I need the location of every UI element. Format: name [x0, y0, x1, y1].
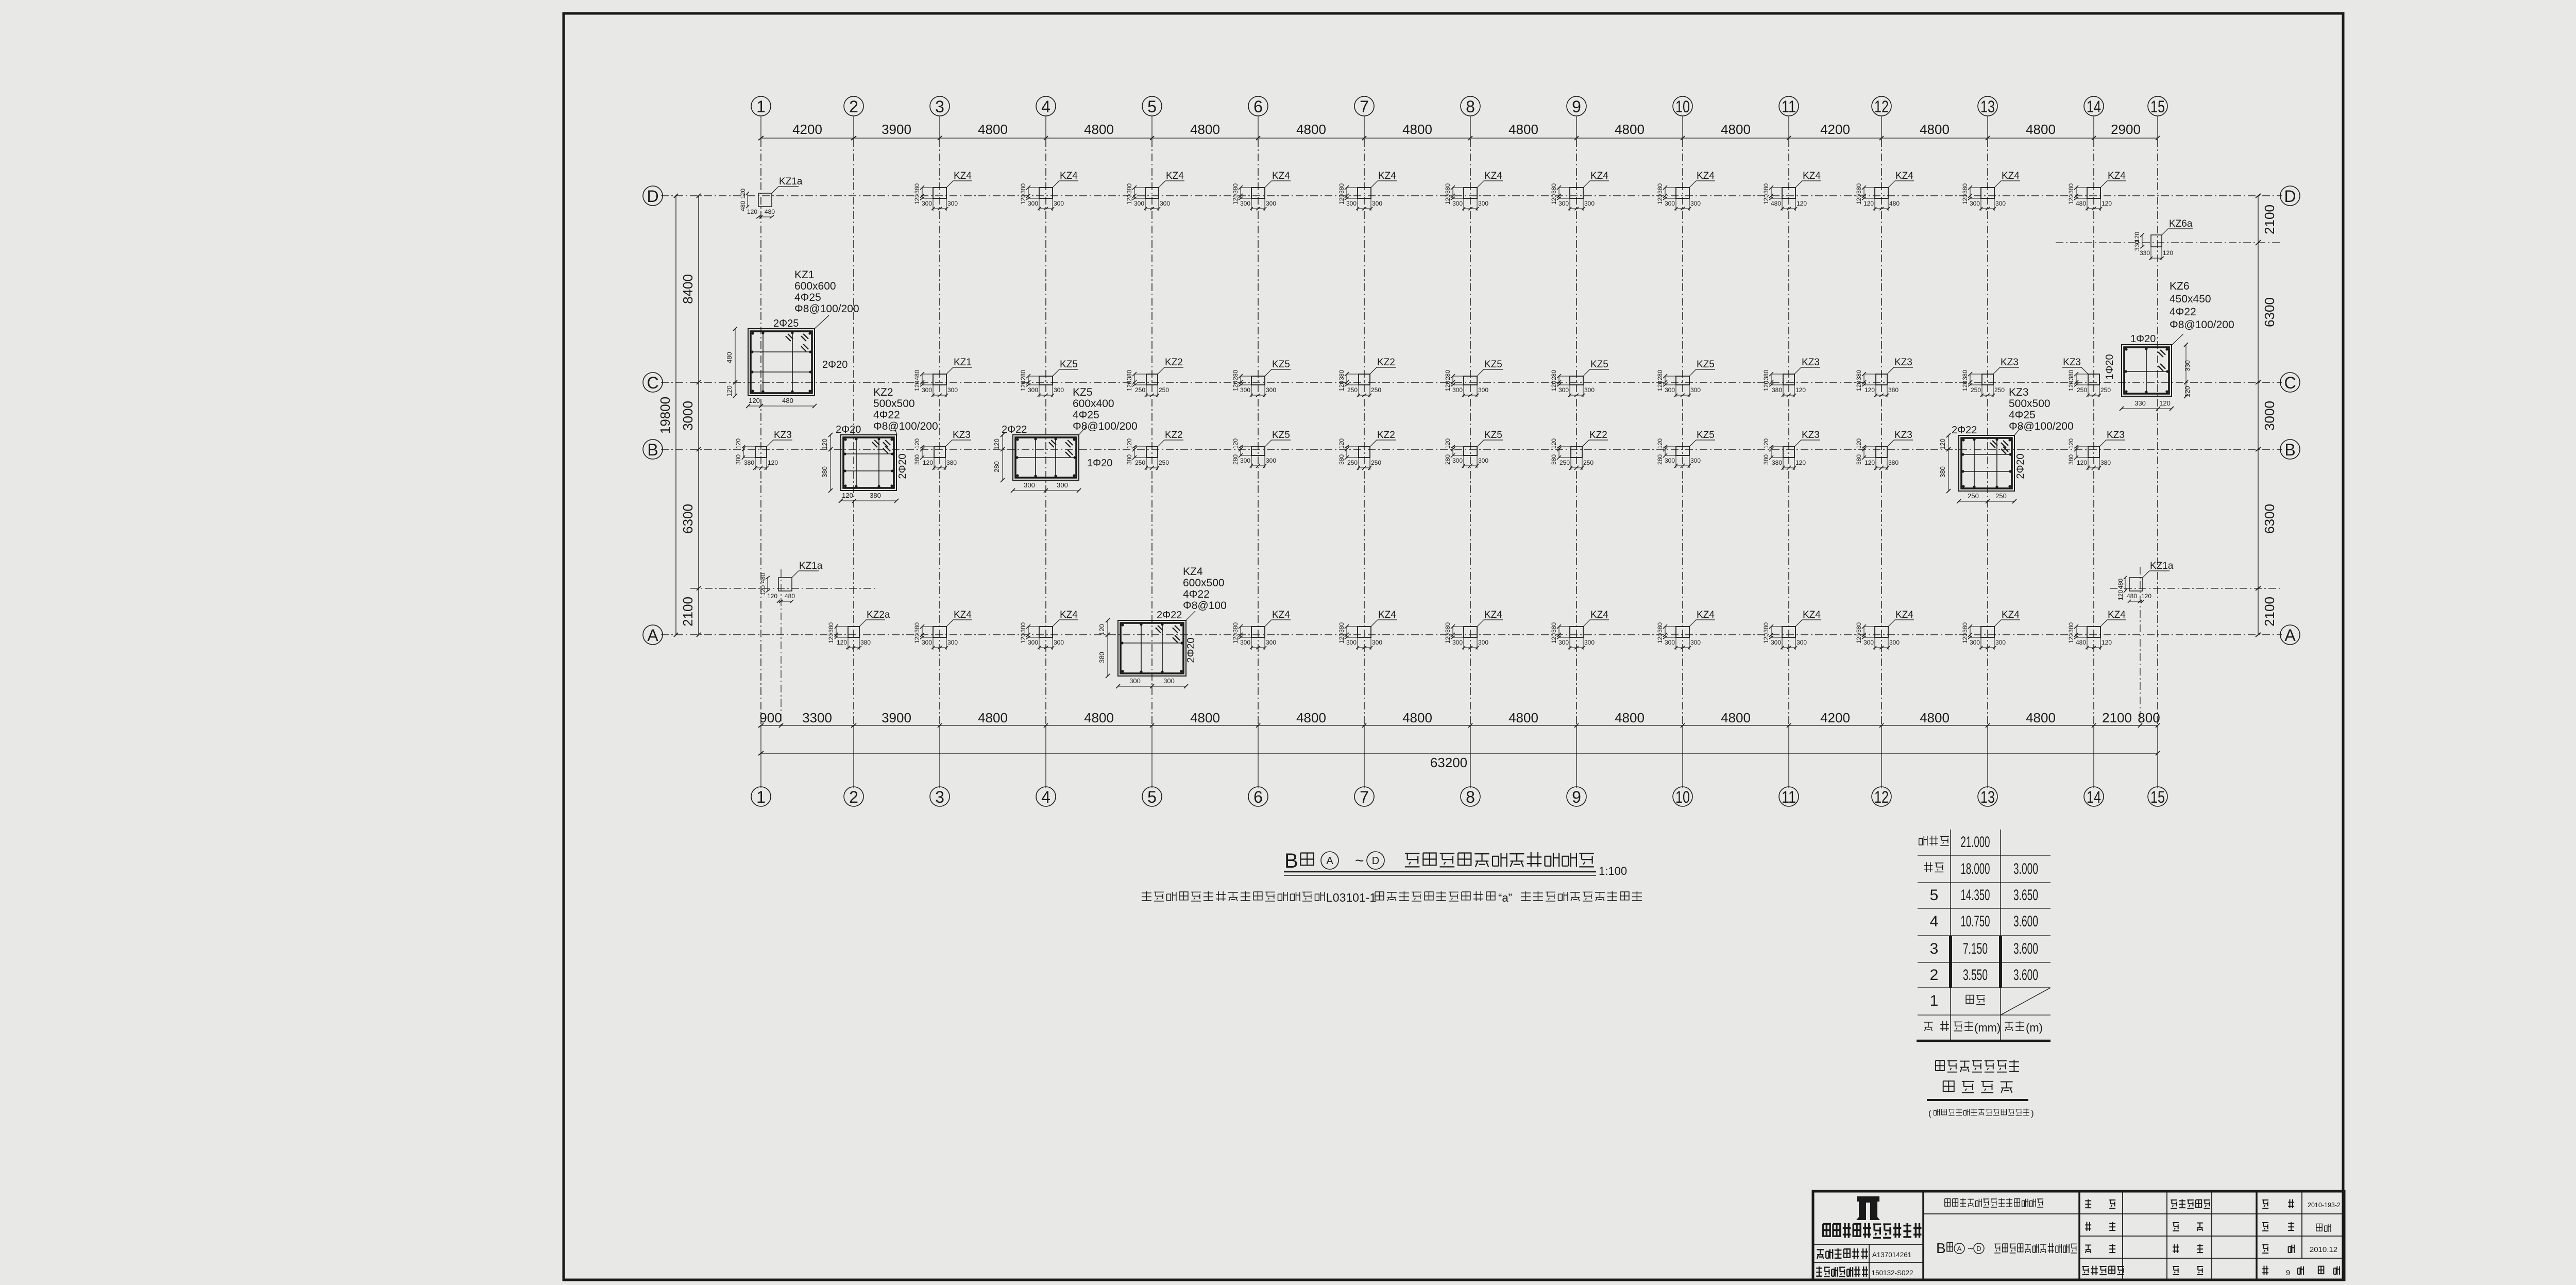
svg-text:300: 300 — [1478, 457, 1488, 464]
svg-text:120: 120 — [2183, 386, 2191, 397]
svg-text:300: 300 — [1024, 481, 1035, 489]
svg-text:120: 120 — [913, 438, 921, 449]
svg-text:120: 120 — [993, 438, 1001, 450]
svg-text:380: 380 — [1444, 622, 1451, 633]
svg-text:300: 300 — [1028, 639, 1038, 646]
svg-text:120: 120 — [2141, 593, 2151, 600]
svg-text:380: 380 — [1888, 459, 1899, 466]
svg-text:480: 480 — [2076, 200, 2086, 207]
svg-text:120: 120 — [735, 438, 742, 449]
svg-text:800: 800 — [2138, 710, 2160, 725]
svg-text:10: 10 — [1675, 97, 1690, 116]
svg-text:A: A — [1957, 1245, 1962, 1253]
svg-text:~: ~ — [1355, 852, 1364, 869]
svg-text:KZ3: KZ3 — [1894, 357, 1912, 368]
svg-text:B: B — [1936, 1240, 1946, 1256]
svg-text:480: 480 — [913, 370, 921, 380]
svg-text:280: 280 — [1656, 454, 1664, 465]
svg-text:4800: 4800 — [1615, 122, 1645, 137]
svg-text:500x500: 500x500 — [873, 398, 915, 410]
svg-text:120: 120 — [747, 208, 757, 215]
svg-text:380: 380 — [821, 466, 828, 478]
svg-text:11: 11 — [1782, 788, 1796, 806]
svg-text:380: 380 — [1939, 466, 1946, 478]
svg-text:A: A — [2284, 626, 2296, 645]
svg-text:7: 7 — [1360, 97, 1369, 116]
svg-text:120: 120 — [1338, 633, 1345, 644]
svg-text:KZ3: KZ3 — [2009, 386, 2029, 398]
svg-text:300: 300 — [1054, 639, 1064, 646]
svg-text:7: 7 — [1360, 788, 1369, 806]
svg-text:KZ4: KZ4 — [954, 171, 972, 181]
svg-text:120: 120 — [1550, 633, 1557, 644]
svg-text:120: 120 — [1762, 194, 1770, 205]
svg-text:KZ3: KZ3 — [953, 430, 971, 441]
svg-text:380: 380 — [1855, 370, 1862, 380]
svg-text:): ) — [2031, 1108, 2034, 1118]
svg-text:2Φ22: 2Φ22 — [1952, 425, 1977, 436]
svg-text:KZ4: KZ4 — [2108, 171, 2126, 181]
svg-text:KZ4: KZ4 — [1697, 610, 1715, 620]
svg-text:KZ4: KZ4 — [954, 610, 972, 620]
svg-text:120: 120 — [1338, 381, 1345, 391]
svg-text:4800: 4800 — [1721, 710, 1751, 725]
svg-text:380: 380 — [1232, 622, 1239, 633]
svg-text:19800: 19800 — [657, 397, 673, 434]
svg-text:KZ4: KZ4 — [1697, 171, 1715, 181]
svg-text:63200: 63200 — [1430, 755, 1467, 770]
svg-text:B: B — [2284, 441, 2295, 459]
svg-text:120: 120 — [1020, 381, 1027, 391]
svg-text:KZ4: KZ4 — [1272, 171, 1290, 181]
svg-text:120: 120 — [2067, 438, 2075, 449]
svg-text:250: 250 — [1135, 386, 1145, 394]
svg-text:3.000: 3.000 — [2013, 860, 2038, 877]
svg-text:2: 2 — [849, 97, 858, 116]
svg-text:120: 120 — [1126, 381, 1133, 391]
svg-text:120: 120 — [1232, 381, 1239, 391]
svg-text:KZ4: KZ4 — [1060, 171, 1078, 181]
svg-text:300: 300 — [1163, 677, 1175, 685]
svg-text:300: 300 — [1054, 386, 1064, 394]
svg-text:300: 300 — [1690, 200, 1701, 207]
svg-text:120: 120 — [1232, 438, 1239, 449]
svg-text:300: 300 — [1478, 639, 1488, 646]
svg-text:8: 8 — [1466, 788, 1475, 806]
svg-text:300: 300 — [1028, 200, 1038, 207]
svg-text:280: 280 — [1444, 454, 1451, 465]
svg-text:280: 280 — [1232, 454, 1239, 465]
svg-text:250: 250 — [2077, 386, 2087, 394]
svg-text:A: A — [1326, 855, 1333, 867]
svg-text:120: 120 — [1762, 381, 1770, 391]
svg-text:3900: 3900 — [882, 710, 911, 725]
svg-text:4800: 4800 — [1509, 122, 1538, 137]
svg-text:250: 250 — [1159, 386, 1169, 394]
svg-text:1Φ20: 1Φ20 — [1087, 458, 1112, 469]
svg-text:380: 380 — [1656, 622, 1664, 633]
svg-text:KZ4: KZ4 — [1378, 171, 1396, 181]
svg-text:300: 300 — [922, 200, 932, 207]
svg-text:120: 120 — [1338, 194, 1345, 205]
svg-text:6300: 6300 — [2262, 504, 2277, 534]
svg-text:480: 480 — [765, 208, 775, 215]
svg-text:6: 6 — [1253, 788, 1263, 806]
svg-text:120: 120 — [821, 438, 828, 450]
svg-text:380: 380 — [1232, 183, 1239, 194]
svg-text:D: D — [1976, 1245, 1981, 1253]
svg-text:3.600: 3.600 — [2013, 913, 2038, 930]
svg-text:3.550: 3.550 — [1963, 967, 1988, 984]
svg-text:300: 300 — [922, 386, 932, 394]
svg-text:6: 6 — [1253, 97, 1263, 116]
svg-text:250: 250 — [1135, 459, 1145, 466]
svg-text:KZ1: KZ1 — [794, 269, 815, 281]
svg-text:380: 380 — [913, 183, 921, 194]
svg-text:120: 120 — [2067, 194, 2075, 205]
svg-text:2Φ25: 2Φ25 — [773, 318, 799, 329]
svg-text:380: 380 — [1550, 622, 1557, 633]
svg-text:600x600: 600x600 — [794, 280, 836, 292]
svg-text:300: 300 — [1690, 457, 1701, 464]
svg-text:4800: 4800 — [1296, 122, 1326, 137]
svg-text:300: 300 — [1266, 639, 1276, 646]
svg-text:KZ3: KZ3 — [1802, 430, 1820, 441]
svg-text:300: 300 — [1266, 457, 1276, 464]
svg-text:KZ4: KZ4 — [1060, 610, 1078, 620]
svg-text:250: 250 — [2100, 386, 2111, 394]
svg-text:300: 300 — [1690, 639, 1701, 646]
svg-text:120: 120 — [2117, 590, 2124, 600]
svg-text:380: 380 — [1338, 622, 1345, 633]
svg-text:300: 300 — [1771, 639, 1781, 646]
svg-text:300: 300 — [1665, 386, 1675, 394]
svg-text:KZ3: KZ3 — [2107, 430, 2125, 441]
svg-text:Φ8@100: Φ8@100 — [1183, 600, 1227, 612]
svg-text:KZ4: KZ4 — [1166, 171, 1184, 181]
svg-text:120: 120 — [1232, 194, 1239, 205]
svg-text:600x500: 600x500 — [1183, 577, 1225, 589]
svg-text:3300: 3300 — [802, 710, 832, 725]
svg-text:KZ4: KZ4 — [1484, 610, 1502, 620]
svg-text:300: 300 — [1970, 200, 1980, 207]
svg-text:15: 15 — [2150, 97, 2165, 116]
svg-text:KZ4: KZ4 — [1803, 171, 1821, 181]
svg-text:120: 120 — [1126, 438, 1133, 449]
svg-text:380: 380 — [1961, 370, 1969, 380]
svg-text:D: D — [647, 187, 658, 206]
svg-text:120: 120 — [913, 194, 921, 205]
svg-text:KZ5: KZ5 — [1484, 359, 1502, 370]
svg-text:250: 250 — [1583, 459, 1594, 466]
svg-text:(: ( — [1928, 1108, 1931, 1118]
svg-text:4: 4 — [1041, 788, 1050, 806]
svg-text:120: 120 — [2102, 200, 2112, 207]
svg-text:KZ4: KZ4 — [1272, 610, 1290, 620]
svg-text:4Φ25: 4Φ25 — [2009, 409, 2036, 421]
svg-text:500x500: 500x500 — [2009, 398, 2050, 410]
svg-text:3000: 3000 — [2262, 401, 2277, 431]
svg-text:380: 380 — [1762, 183, 1770, 194]
svg-text:300: 300 — [1160, 200, 1170, 207]
svg-text:300: 300 — [1558, 639, 1569, 646]
svg-text:3.600: 3.600 — [2013, 940, 2038, 957]
svg-text:KZ6: KZ6 — [2170, 280, 2190, 292]
svg-text:120: 120 — [1550, 194, 1557, 205]
svg-text:2100: 2100 — [2262, 205, 2277, 234]
svg-text:120: 120 — [1961, 381, 1969, 391]
svg-text:D: D — [1372, 855, 1379, 867]
svg-text:12: 12 — [1874, 97, 1889, 116]
svg-text:120: 120 — [2067, 633, 2075, 644]
svg-text:4800: 4800 — [2026, 710, 2056, 725]
svg-text:2: 2 — [1930, 967, 1939, 984]
svg-text:300: 300 — [1558, 386, 1569, 394]
svg-text:14: 14 — [2087, 97, 2101, 116]
svg-text:3: 3 — [1930, 940, 1939, 957]
svg-text:300: 300 — [1558, 200, 1569, 207]
svg-text:120: 120 — [1656, 381, 1664, 391]
svg-text:120: 120 — [827, 633, 835, 644]
svg-text:300: 300 — [1240, 639, 1250, 646]
svg-text:4800: 4800 — [1509, 710, 1538, 725]
svg-text:7.150: 7.150 — [1963, 940, 1988, 957]
svg-text:300: 300 — [1584, 639, 1595, 646]
svg-text:120: 120 — [913, 633, 921, 644]
svg-text:6300: 6300 — [680, 504, 696, 534]
svg-text:480: 480 — [782, 397, 793, 404]
svg-text:2100: 2100 — [2102, 710, 2132, 725]
svg-text:120: 120 — [1550, 381, 1557, 391]
svg-text:KZ5: KZ5 — [1272, 430, 1290, 441]
svg-text:L03101-1: L03101-1 — [1326, 891, 1376, 904]
svg-text:380: 380 — [913, 454, 921, 465]
svg-text:380: 380 — [735, 454, 742, 465]
svg-text:380: 380 — [2067, 454, 2075, 465]
svg-text:KZ4: KZ4 — [1895, 610, 1913, 620]
svg-text:4Φ25: 4Φ25 — [794, 292, 821, 303]
svg-text:480: 480 — [739, 201, 747, 211]
svg-text:KZ4: KZ4 — [1484, 171, 1502, 181]
svg-text:KZ1a: KZ1a — [799, 561, 823, 571]
svg-text:KZ3: KZ3 — [2001, 357, 2019, 368]
svg-text:120: 120 — [1865, 386, 1875, 394]
svg-text:1Φ20: 1Φ20 — [2130, 333, 2156, 345]
svg-text:KZ2: KZ2 — [1377, 357, 1395, 368]
svg-text:300: 300 — [1134, 200, 1144, 207]
svg-text:4800: 4800 — [978, 710, 1008, 725]
svg-text:450x450: 450x450 — [2170, 293, 2211, 305]
svg-text:1: 1 — [756, 97, 766, 116]
svg-text:120: 120 — [1444, 633, 1451, 644]
svg-text:120: 120 — [1939, 438, 1946, 450]
svg-text:4800: 4800 — [1920, 710, 1950, 725]
svg-text:4800: 4800 — [978, 122, 1008, 137]
svg-text:380: 380 — [1098, 652, 1106, 663]
svg-text:KZ2: KZ2 — [873, 386, 893, 398]
svg-text:4200: 4200 — [1820, 710, 1850, 725]
svg-text:15: 15 — [2150, 788, 2165, 806]
svg-text:280: 280 — [1550, 370, 1557, 380]
svg-text:KZ1a: KZ1a — [2150, 561, 2174, 571]
svg-text:8400: 8400 — [680, 274, 696, 304]
svg-text:380: 380 — [1855, 183, 1862, 194]
svg-text:KZ2: KZ2 — [1377, 430, 1395, 441]
svg-text:2Φ20: 2Φ20 — [822, 359, 848, 370]
svg-text:300: 300 — [1665, 457, 1675, 464]
svg-text:1: 1 — [1930, 992, 1939, 1009]
svg-text:120: 120 — [1338, 438, 1345, 449]
svg-text:KZ4: KZ4 — [1590, 171, 1608, 181]
svg-text:13: 13 — [1980, 97, 1995, 116]
svg-text:KZ3: KZ3 — [1894, 430, 1912, 441]
svg-text:300: 300 — [1372, 639, 1382, 646]
svg-text:3000: 3000 — [680, 401, 696, 431]
svg-text:“a”: “a” — [1498, 891, 1512, 904]
svg-text:280: 280 — [1656, 370, 1664, 380]
svg-text:2Φ20: 2Φ20 — [2015, 453, 2026, 479]
svg-text:4: 4 — [1041, 97, 1050, 116]
svg-text:KZ4: KZ4 — [2108, 610, 2126, 620]
svg-text:300: 300 — [947, 200, 958, 207]
svg-text:KZ4: KZ4 — [1895, 171, 1913, 181]
svg-text:Φ8@100/200: Φ8@100/200 — [794, 303, 859, 315]
svg-text:4800: 4800 — [1402, 710, 1432, 725]
svg-text:120: 120 — [2102, 639, 2112, 646]
svg-text:120: 120 — [725, 385, 733, 397]
svg-text:250: 250 — [1560, 459, 1570, 466]
svg-text:480: 480 — [725, 352, 733, 363]
svg-text:2Φ20: 2Φ20 — [897, 453, 908, 479]
svg-text:380: 380 — [1020, 622, 1027, 633]
svg-text:9: 9 — [1572, 97, 1581, 116]
svg-text:480: 480 — [785, 593, 795, 600]
svg-text:120: 120 — [2163, 249, 2173, 257]
svg-text:2Φ20: 2Φ20 — [1185, 637, 1197, 663]
svg-text:380: 380 — [2067, 370, 2075, 380]
svg-text:150132-S022: 150132-S022 — [1871, 1269, 1913, 1277]
svg-text:2Φ22: 2Φ22 — [1002, 424, 1027, 435]
svg-text:120: 120 — [1020, 633, 1027, 644]
svg-text:300: 300 — [1584, 200, 1595, 207]
svg-text:KZ4: KZ4 — [1590, 610, 1608, 620]
svg-text:300: 300 — [1266, 200, 1276, 207]
svg-text:300: 300 — [1452, 457, 1463, 464]
svg-text:120: 120 — [1855, 633, 1862, 644]
svg-text:250: 250 — [1994, 386, 2005, 394]
svg-text:120: 120 — [842, 492, 853, 499]
svg-text:120: 120 — [1020, 194, 1027, 205]
svg-text:KZ3: KZ3 — [1802, 357, 1820, 368]
svg-text:380: 380 — [1020, 183, 1027, 194]
svg-text:KZ5: KZ5 — [1272, 359, 1290, 370]
svg-text:380: 380 — [860, 639, 871, 646]
svg-text:300: 300 — [1346, 200, 1357, 207]
svg-text:120: 120 — [2159, 399, 2171, 407]
svg-text:4Φ22: 4Φ22 — [2170, 306, 2196, 318]
svg-text:120: 120 — [2067, 381, 2075, 391]
svg-text:300: 300 — [922, 639, 932, 646]
svg-text:380: 380 — [744, 459, 754, 466]
svg-text:KZ1: KZ1 — [954, 357, 972, 368]
svg-text:(mm): (mm) — [1974, 1021, 2001, 1034]
svg-text:120: 120 — [768, 459, 778, 466]
svg-text:2Φ20: 2Φ20 — [836, 424, 861, 435]
svg-text:120: 120 — [1961, 194, 1969, 205]
svg-text:3: 3 — [935, 788, 944, 806]
svg-text:KZ5: KZ5 — [1484, 430, 1502, 441]
svg-text:480: 480 — [2076, 639, 2086, 646]
svg-text:250: 250 — [1971, 386, 1981, 394]
svg-text:2010.12: 2010.12 — [2310, 1245, 2337, 1254]
svg-text:(m): (m) — [2026, 1021, 2043, 1034]
svg-text:KZ5: KZ5 — [1697, 430, 1715, 441]
svg-text:380: 380 — [1550, 183, 1557, 194]
svg-text:120: 120 — [1762, 633, 1770, 644]
svg-text:300: 300 — [1478, 200, 1488, 207]
svg-text:2010-193-2: 2010-193-2 — [2308, 1202, 2341, 1209]
svg-text:330: 330 — [2140, 249, 2150, 257]
svg-text:120: 120 — [749, 397, 760, 404]
svg-text:300: 300 — [1690, 386, 1701, 394]
svg-text:300: 300 — [1452, 639, 1463, 646]
svg-text:380: 380 — [1762, 454, 1770, 465]
svg-text:120: 120 — [1855, 194, 1862, 205]
svg-text:120: 120 — [767, 593, 777, 600]
svg-text:B: B — [647, 441, 658, 459]
svg-text:120: 120 — [1865, 459, 1875, 466]
svg-text:120: 120 — [1797, 200, 1807, 207]
svg-text:280: 280 — [1020, 370, 1027, 380]
svg-text:4Φ22: 4Φ22 — [873, 409, 900, 421]
svg-text:120: 120 — [837, 639, 847, 646]
svg-text:KZ5: KZ5 — [1697, 359, 1715, 370]
svg-text:2Φ22: 2Φ22 — [1157, 610, 1182, 621]
svg-text:10: 10 — [1675, 788, 1690, 806]
svg-text:300: 300 — [1995, 639, 2006, 646]
svg-text:KZ2: KZ2 — [1165, 357, 1183, 368]
svg-text:KZ4: KZ4 — [2002, 171, 2020, 181]
svg-text:300: 300 — [1665, 639, 1675, 646]
svg-text:1:100: 1:100 — [1599, 865, 1627, 877]
svg-text:300: 300 — [1889, 639, 1900, 646]
svg-text:480: 480 — [759, 573, 767, 583]
svg-text:120: 120 — [923, 459, 933, 466]
svg-text:300: 300 — [947, 639, 958, 646]
svg-text:300: 300 — [1970, 639, 1980, 646]
svg-text:120: 120 — [739, 189, 747, 199]
svg-text:480: 480 — [2127, 593, 2137, 600]
svg-text:A137014261: A137014261 — [1872, 1251, 1912, 1259]
svg-text:380: 380 — [2067, 622, 2075, 633]
svg-text:3900: 3900 — [882, 122, 911, 137]
svg-text:480: 480 — [1771, 200, 1781, 207]
svg-text:21.000: 21.000 — [1961, 834, 1990, 851]
svg-text:KZ4: KZ4 — [1378, 610, 1396, 620]
svg-text:5: 5 — [1147, 97, 1157, 116]
svg-text:380: 380 — [870, 492, 881, 499]
svg-text:4Φ25: 4Φ25 — [1073, 409, 1099, 421]
svg-text:380: 380 — [1762, 370, 1770, 380]
svg-text:480: 480 — [2117, 579, 2124, 589]
svg-text:380: 380 — [1444, 183, 1451, 194]
svg-text:380: 380 — [1855, 622, 1862, 633]
svg-text:4800: 4800 — [2026, 122, 2056, 137]
svg-text:380: 380 — [1338, 454, 1345, 465]
svg-text:380: 380 — [1550, 454, 1557, 465]
svg-text:120: 120 — [1232, 633, 1239, 644]
svg-text:KZ1a: KZ1a — [779, 176, 803, 187]
